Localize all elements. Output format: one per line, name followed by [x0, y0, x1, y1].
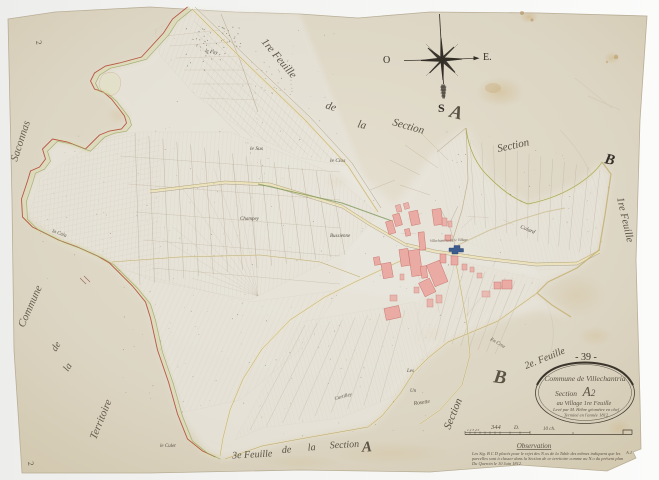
svg-text:E.: E. [483, 52, 492, 63]
svg-text:1 2 3 4 5: 1 2 3 4 5 [467, 428, 480, 432]
svg-text:10 ch.: 10 ch. [543, 427, 555, 432]
svg-text:Un: Un [410, 389, 417, 394]
svg-text:3e Feuille: 3e Feuille [231, 448, 273, 461]
svg-text:A.1: A.1 [625, 450, 632, 455]
svg-text:S: S [438, 101, 445, 115]
svg-text:le Clos: le Clos [330, 158, 345, 164]
svg-text:Terminé en l'année 1812: Terminé en l'année 1812 [564, 413, 609, 418]
svg-text:Bussienne: Bussienne [330, 234, 351, 239]
svg-text:Section: Section [329, 439, 359, 452]
svg-text:de: de [282, 444, 293, 456]
svg-text:Les: Les [406, 369, 414, 374]
svg-text:Levé par M. Hébre géomètre en: Levé par M. Hébre géomètre en chef [552, 407, 620, 412]
svg-text:A: A [360, 439, 372, 456]
svg-text:le Culet: le Culet [160, 444, 176, 449]
svg-text:Observation: Observation [517, 442, 552, 450]
svg-text:Champey: Champey [240, 217, 260, 222]
svg-text:O: O [383, 55, 390, 66]
svg-text:- 39 -: - 39 - [575, 352, 597, 363]
svg-text:D.: D. [513, 425, 519, 431]
svg-text:le Sus: le Sus [250, 146, 263, 152]
svg-text:B: B [491, 366, 507, 389]
svg-text:Section: Section [555, 389, 577, 398]
svg-text:la: la [308, 442, 316, 453]
svg-text:Du Quercin le 10 Juin 1812.: Du Quercin le 10 Juin 1812. [471, 461, 522, 466]
svg-text:Commune de Villechantria: Commune de Villechantria [544, 374, 625, 383]
svg-text:344: 344 [490, 424, 502, 431]
svg-text:au Village 1re Feuille: au Village 1re Feuille [557, 400, 612, 407]
